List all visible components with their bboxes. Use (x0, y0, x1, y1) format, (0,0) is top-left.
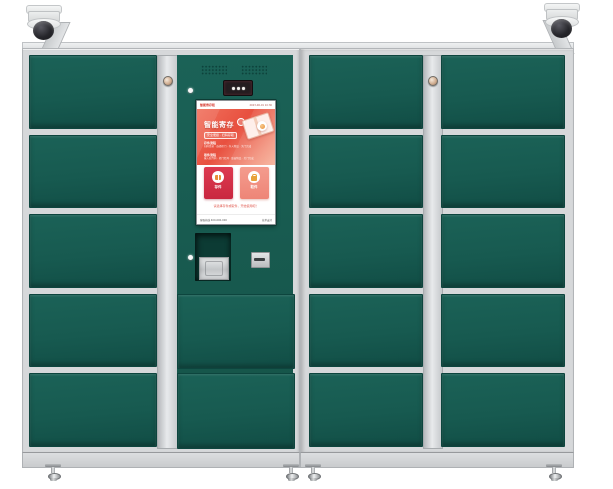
banner-title: 智能寄存 (204, 120, 234, 130)
locker-unit-left: 智能寄存柜 2023-06-01 10:30 智能寄存 安全便捷 · 扫码存取 … (22, 48, 300, 454)
dome-camera-icon (33, 21, 54, 40)
deposit-button[interactable]: 存件 (204, 167, 233, 199)
package-circle-icon (257, 121, 267, 131)
locker-door[interactable] (177, 294, 295, 369)
locker-door[interactable] (441, 55, 565, 129)
camera-dot-icon (237, 87, 240, 90)
pickup-lock-icon (248, 171, 260, 183)
deposit-button-label: 存件 (215, 185, 222, 190)
led-button[interactable] (188, 88, 193, 93)
banner-tag: 安全便捷 · 扫码存取 (204, 132, 237, 139)
control-panel-column: 智能寄存柜 2023-06-01 10:30 智能寄存 安全便捷 · 扫码存取 … (177, 55, 293, 447)
banner-bullet-group: 存件流程 扫码登录 · 选择柜门 · 存入物品 · 关门完成 (204, 141, 264, 149)
metal-plate (199, 257, 229, 280)
bullet-line: 扫码登录 · 选择柜门 · 存入物品 · 关门完成 (204, 145, 264, 149)
touchscreen[interactable]: 智能寄存柜 2023-06-01 10:30 智能寄存 安全便捷 · 扫码存取 … (196, 100, 276, 225)
cylinder-lock-icon[interactable] (163, 76, 173, 86)
camera-dot-icon (242, 87, 245, 90)
orange-ball-icon (260, 124, 265, 129)
deposit-package-icon (212, 171, 224, 183)
camera-dot-icon (232, 87, 235, 90)
lock-glyph-icon (251, 176, 257, 181)
locker-door[interactable] (441, 135, 565, 209)
screen-banner: 智能寄存 安全便捷 · 扫码存取 存件流程 扫码登录 · 选择柜门 · 存入物品… (197, 109, 275, 165)
locker-door[interactable] (29, 373, 157, 447)
screen-footer: 客服热线 400-000-000 技术支持 (197, 214, 275, 224)
locker-door[interactable] (29, 214, 157, 288)
dome-camera-icon (551, 19, 572, 38)
led-button[interactable] (188, 255, 193, 260)
door-column (309, 55, 423, 447)
screen-hint-text: 请选择存件或取件，开始使用吧！ (197, 204, 275, 208)
cabinet-base (300, 452, 574, 468)
leveling-foot (545, 464, 563, 482)
screen-status: 2023-06-01 10:30 (249, 104, 272, 107)
drop-compartment[interactable] (195, 233, 231, 281)
door-column (29, 55, 157, 447)
locker-door[interactable] (309, 294, 423, 368)
card-slot[interactable] (251, 252, 270, 268)
locker-cabinet-scene: 智能寄存柜 2023-06-01 10:30 智能寄存 安全便捷 · 扫码存取 … (0, 0, 613, 489)
locker-door[interactable] (309, 55, 423, 129)
locker-door[interactable] (309, 135, 423, 209)
screen-header: 智能寄存柜 2023-06-01 10:30 (197, 101, 275, 109)
leveling-foot (304, 464, 322, 482)
locker-door[interactable] (29, 294, 157, 368)
footer-right-text: 技术支持 (262, 218, 272, 222)
locker-door[interactable] (177, 373, 295, 449)
banner-bullet-group: 取件流程 输入取件码 · 柜门打开 · 取出物品 · 关门完成 (204, 153, 264, 161)
locker-door[interactable] (29, 135, 157, 209)
locker-door[interactable] (441, 373, 565, 447)
locker-door[interactable] (29, 55, 157, 129)
footer-left-text: 客服热线 400-000-000 (200, 218, 227, 222)
bullet-line: 输入取件码 · 柜门打开 · 取出物品 · 关门完成 (204, 157, 264, 161)
locker-door[interactable] (441, 214, 565, 288)
cylinder-lock-icon[interactable] (428, 76, 438, 86)
lock-rail (423, 55, 443, 449)
package-glyph-icon (215, 175, 221, 180)
speaker-grille-icon (201, 65, 227, 75)
door-column (441, 55, 565, 447)
screen-brand: 智能寄存柜 (200, 103, 215, 107)
speaker-grille-icon (241, 65, 267, 75)
locker-door[interactable] (309, 373, 423, 447)
locker-door[interactable] (441, 294, 565, 368)
leveling-foot (282, 464, 300, 482)
leveling-foot (44, 464, 62, 482)
action-buttons-row: 存件 取件 (197, 167, 275, 199)
lock-rail (157, 55, 179, 449)
cabinet-base (22, 452, 300, 468)
locker-unit-right (300, 48, 574, 454)
locker-door[interactable] (309, 214, 423, 288)
pickup-button[interactable]: 取件 (240, 167, 269, 199)
scanner-camera-module (223, 80, 253, 96)
pickup-button-label: 取件 (251, 185, 258, 190)
